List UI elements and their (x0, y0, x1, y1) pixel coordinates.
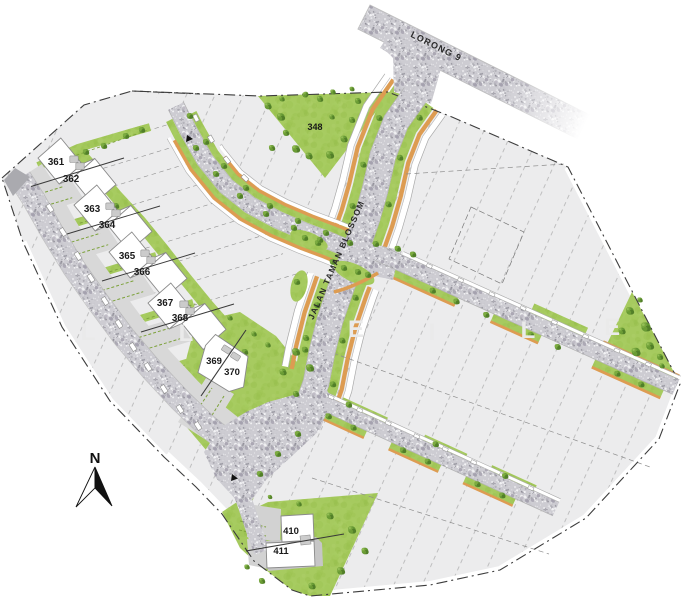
svg-text:L: L (521, 317, 536, 344)
svg-text:364: 364 (99, 220, 116, 231)
svg-text:362: 362 (63, 174, 80, 185)
svg-text:366: 366 (134, 267, 151, 278)
svg-text:367: 367 (157, 298, 174, 309)
svg-text:348: 348 (307, 122, 322, 132)
svg-text:L: L (179, 320, 194, 347)
svg-text:410: 410 (283, 526, 299, 537)
svg-text:E: E (348, 316, 364, 343)
svg-text:370: 370 (224, 367, 240, 378)
svg-text:361: 361 (48, 157, 65, 168)
svg-text:365: 365 (119, 251, 136, 262)
svg-text:411: 411 (273, 546, 289, 557)
svg-text:363: 363 (84, 204, 101, 215)
svg-text:L: L (81, 319, 96, 346)
svg-text:N: N (90, 450, 101, 467)
svg-text:E: E (604, 314, 620, 341)
svg-text:I: I (429, 319, 436, 346)
svg-text:369: 369 (206, 356, 222, 367)
